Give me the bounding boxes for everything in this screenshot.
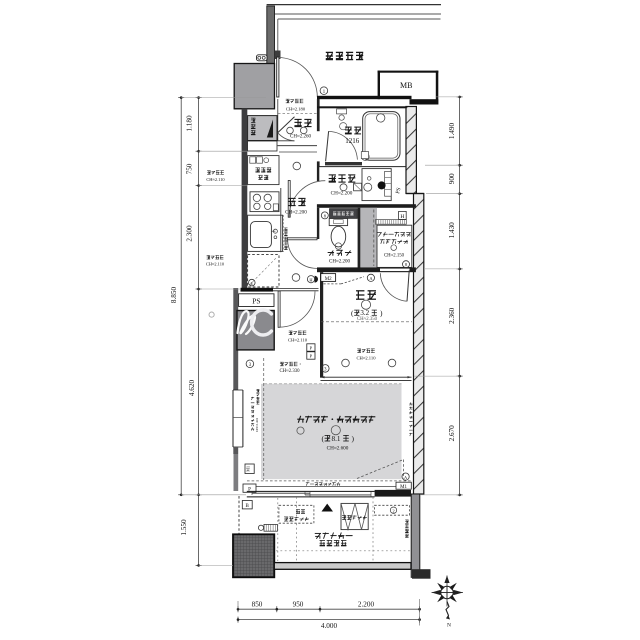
svg-text:900: 900 <box>448 173 456 184</box>
svg-text:4.620: 4.620 <box>188 380 196 397</box>
svg-text:CH≈2.350: CH≈2.350 <box>357 317 378 322</box>
svg-text:CH≈2.600: CH≈2.600 <box>327 445 349 451</box>
svg-text:H: H <box>400 214 404 220</box>
svg-text:2.360: 2.360 <box>448 307 456 324</box>
svg-text:1.550: 1.550 <box>180 519 188 536</box>
svg-text:E: E <box>251 281 254 286</box>
svg-text:CH≈2.150: CH≈2.150 <box>384 253 405 258</box>
svg-text:1.180: 1.180 <box>186 115 194 132</box>
svg-text:CH≈2.110: CH≈2.110 <box>206 262 225 267</box>
svg-text:CH≈2.110: CH≈2.110 <box>206 177 225 182</box>
svg-text:M1: M1 <box>246 466 251 472</box>
svg-text:CH≈2.110: CH≈2.110 <box>288 338 308 343</box>
svg-text:850: 850 <box>252 601 263 609</box>
svg-text:1.490: 1.490 <box>448 123 456 140</box>
svg-text:MB: MB <box>400 81 412 90</box>
svg-text:CH≈2.200: CH≈2.200 <box>285 209 307 215</box>
svg-text:8.1: 8.1 <box>332 435 341 443</box>
svg-text:CH≈2.330: CH≈2.330 <box>279 369 300 374</box>
svg-text:3.2: 3.2 <box>360 309 369 317</box>
svg-text:CH≈2.200: CH≈2.200 <box>329 259 350 264</box>
svg-text:P: P <box>310 354 313 359</box>
svg-text:950: 950 <box>293 601 304 609</box>
svg-text:2.300: 2.300 <box>186 225 194 242</box>
svg-text:P: P <box>310 346 313 351</box>
svg-text:CH≈2.110: CH≈2.110 <box>356 355 376 360</box>
svg-text:2.200: 2.200 <box>358 601 375 609</box>
svg-text:1.430: 1.430 <box>448 222 456 239</box>
svg-text:M2: M2 <box>325 277 332 282</box>
svg-text:CH≈2.200: CH≈2.200 <box>331 190 353 196</box>
svg-text:750: 750 <box>186 163 194 174</box>
svg-text:CH≈2.180: CH≈2.180 <box>286 106 306 111</box>
svg-text:CH≈2.260: CH≈2.260 <box>290 135 311 140</box>
svg-text:2.670: 2.670 <box>448 425 456 442</box>
svg-text:1216: 1216 <box>345 137 360 145</box>
svg-text:PS: PS <box>252 297 260 306</box>
svg-text:N: N <box>447 623 451 629</box>
svg-text:M1: M1 <box>400 485 407 490</box>
svg-text:8.850: 8.850 <box>170 287 178 304</box>
svg-text:4.000: 4.000 <box>321 622 338 630</box>
svg-text:CH≈2.410: CH≈2.410 <box>255 418 259 433</box>
